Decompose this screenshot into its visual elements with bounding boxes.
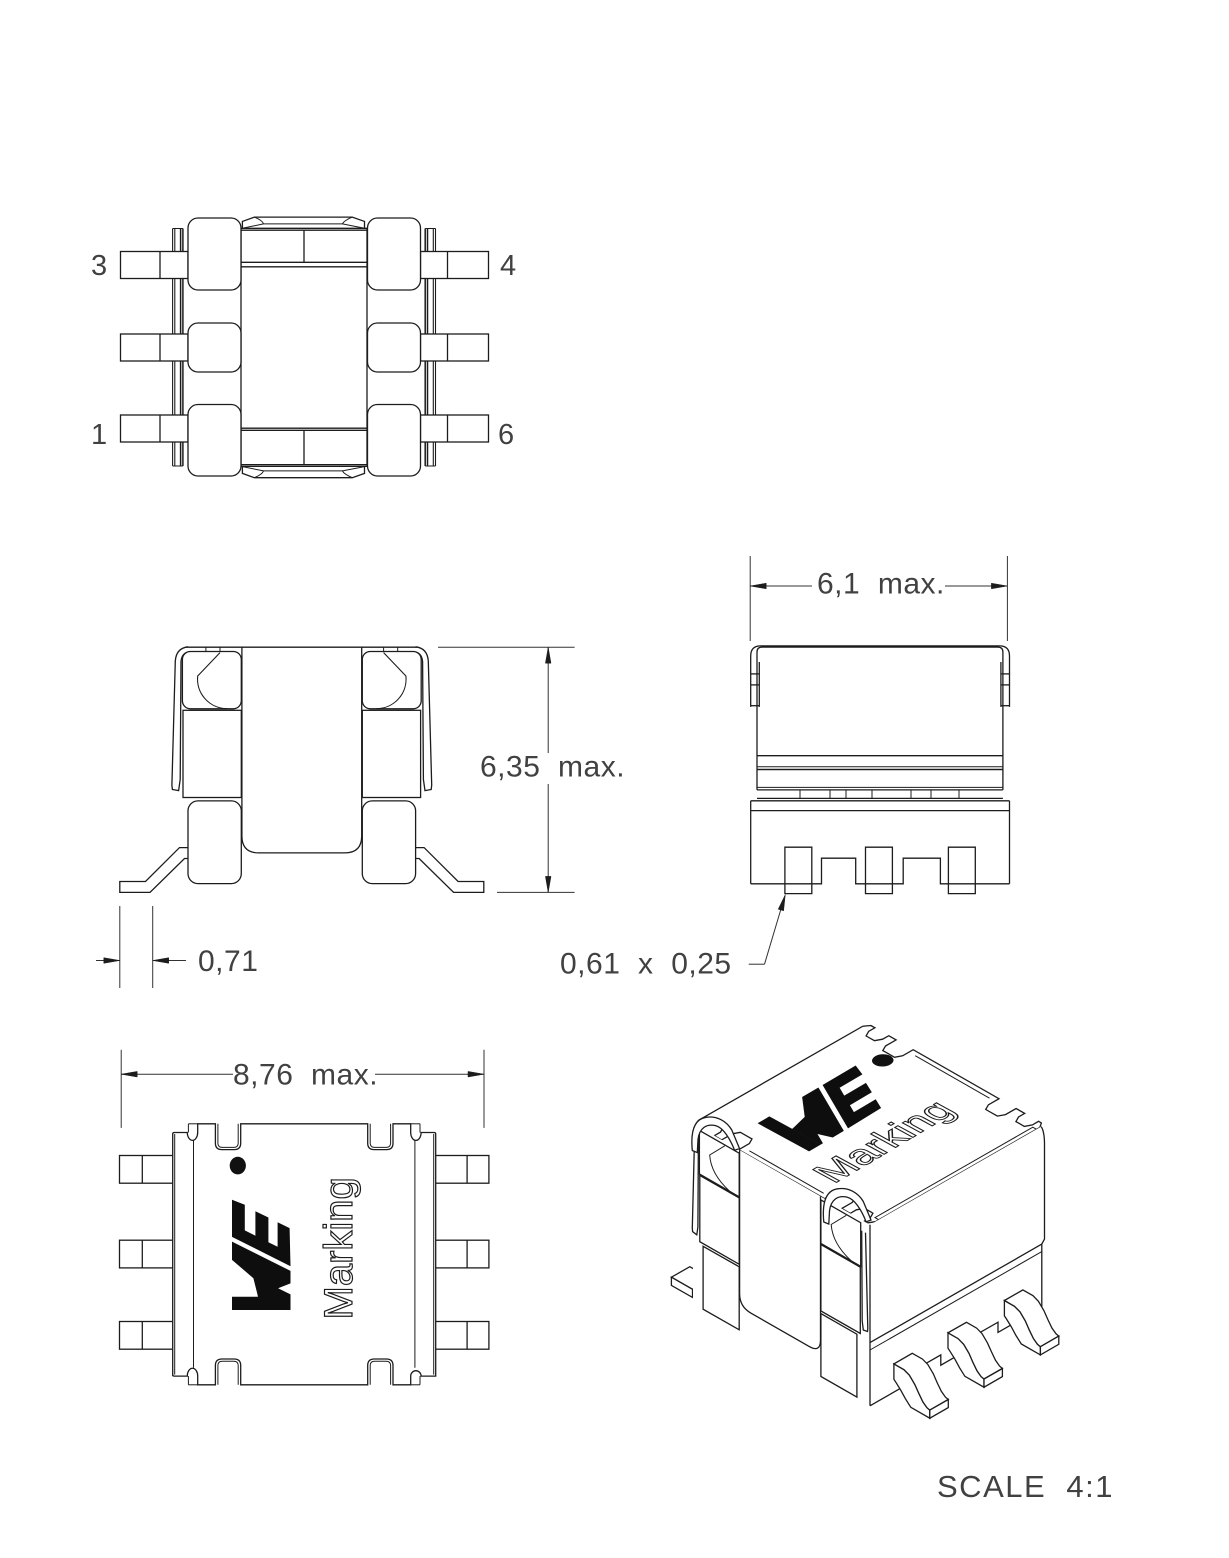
svg-text:SCALE 4:1: SCALE 4:1 xyxy=(937,1469,1114,1504)
svg-text:1: 1 xyxy=(91,419,108,451)
svg-text:0,61 x 0,25: 0,61 x 0,25 xyxy=(560,948,732,981)
svg-text:6,1 max.: 6,1 max. xyxy=(817,568,945,601)
svg-text:Marking: Marking xyxy=(317,1177,361,1319)
svg-text:6: 6 xyxy=(498,419,515,451)
svg-text:8,76 max.: 8,76 max. xyxy=(233,1059,378,1092)
svg-text:6,35 max.: 6,35 max. xyxy=(480,751,625,784)
svg-text:4: 4 xyxy=(500,250,517,282)
svg-text:0,71: 0,71 xyxy=(198,945,258,978)
svg-text:3: 3 xyxy=(91,250,108,282)
